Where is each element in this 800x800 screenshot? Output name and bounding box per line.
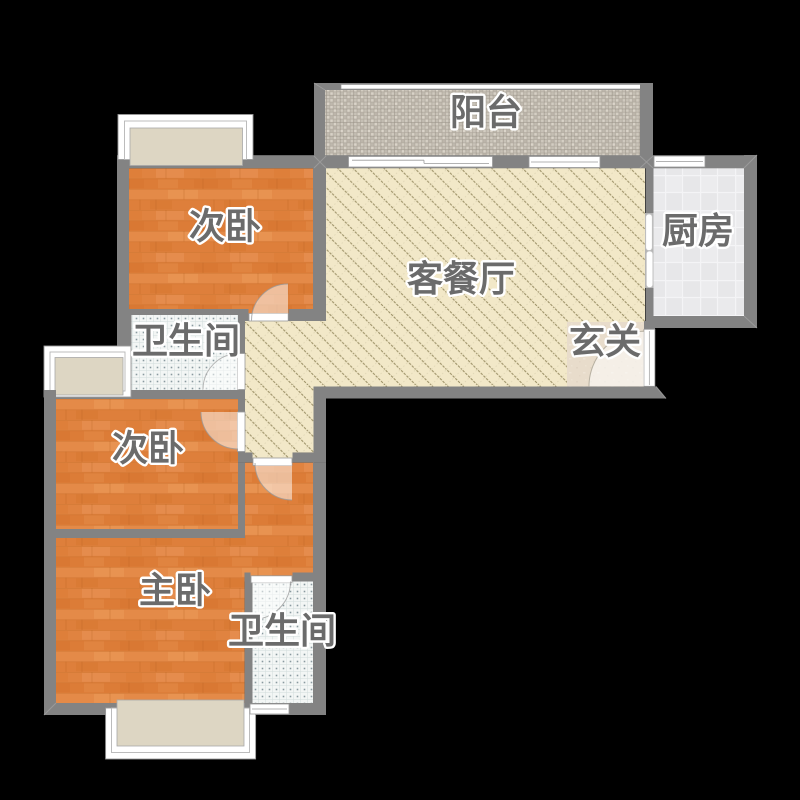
svg-text:卫生间: 卫生间 [132, 320, 240, 361]
svg-text:次卧: 次卧 [189, 206, 261, 247]
svg-text:卫生间: 卫生间 [228, 610, 336, 651]
svg-text:厨房: 厨房 [662, 210, 734, 251]
svg-text:主卧: 主卧 [139, 570, 211, 611]
svg-text:玄关: 玄关 [569, 321, 641, 362]
svg-text:次卧: 次卧 [112, 428, 184, 469]
svg-text:客餐厅: 客餐厅 [407, 258, 515, 299]
svg-text:阳台: 阳台 [450, 92, 522, 133]
